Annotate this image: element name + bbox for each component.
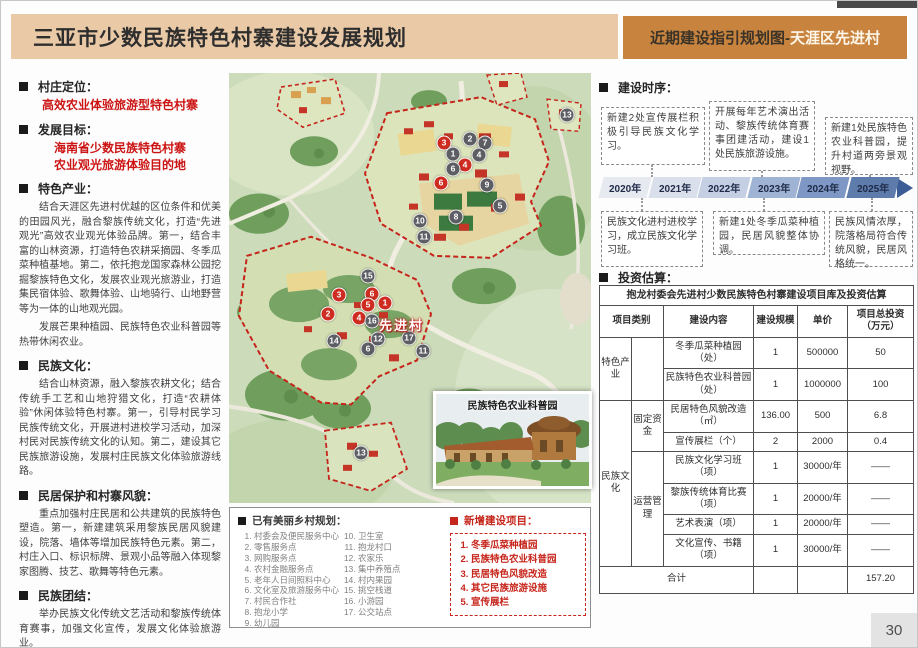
section-heading-text: 民居保护和村寨风貌：: [38, 487, 158, 504]
sequence-box-2023: 开展每年艺术演出活动、黎族传统体育赛事团建活动，建设1处民族旅游设施。: [709, 101, 815, 171]
price-cell: 20000/年: [798, 515, 848, 534]
content-cell: 宣传展栏（个）: [664, 432, 754, 451]
section-heading-positioning: 村庄定位：: [19, 78, 221, 95]
legend-new-heading: 新增建设项目：: [450, 513, 586, 528]
header-title-band: 三亚市少数民族特色村寨建设发展规划: [11, 14, 618, 59]
scale-cell: 1: [754, 337, 798, 369]
section-heading-text: 特色产业：: [38, 180, 98, 197]
col-header-category: 项目类别: [600, 306, 664, 338]
square-bullet-icon: [19, 82, 28, 91]
timeline: 2020年2021年2022年2023年2024年2025年: [601, 177, 913, 198]
legend-existing-columns: 村委会及便民服务中心零售服务点网购服务点农村金融服务点老年人日间照料中心文化室及…: [238, 531, 446, 629]
square-bullet-icon: [19, 491, 28, 500]
map-marker: 3: [332, 288, 347, 303]
timeline-year-segment: 2022年: [697, 177, 750, 198]
legend-item: 民居特色风貌改造: [471, 568, 581, 582]
map-marker: 13: [354, 446, 369, 461]
section-heading-unity: 民族团结：: [19, 587, 221, 604]
legend-item: 幼儿园: [254, 618, 342, 629]
legend-existing-list-2: 卫生室抱龙村口农家乐集中养殖点村内果园挑空栈道小游园公交站点: [342, 531, 446, 629]
map-marker: 1: [378, 296, 393, 311]
section-heading-text: 民族文化：: [38, 357, 98, 374]
price-cell: 30000/年: [798, 534, 848, 566]
map-marker: 5: [493, 199, 508, 214]
legend-existing-heading: 已有美丽乡村规划：: [238, 513, 446, 528]
price-cell: 20000/年: [798, 483, 848, 515]
square-bullet-icon: [19, 184, 28, 193]
positioning-red-line: 高效农业体验旅游型特色村寨: [19, 97, 221, 114]
legend-panel: 已有美丽乡村规划： 村委会及便民服务中心零售服务点网购服务点农村金融服务点老年人…: [229, 507, 591, 628]
investment-table-title: 抱龙村委会先进村少数民族特色村寨建设项目库及投资估算: [600, 286, 914, 306]
section-heading-industry: 特色产业：: [19, 180, 221, 197]
goal-red-line-2: 农业观光旅游体验目的地: [19, 157, 221, 174]
investment-table: 抱龙村委会先进村少数民族特色村寨建设项目库及投资估算 项目类别 建设内容 建设规…: [599, 285, 914, 594]
legend-item: 公交站点: [358, 607, 446, 618]
map-marker: 4: [472, 148, 487, 163]
page-number: 30: [871, 613, 917, 647]
square-bullet-icon: [19, 591, 28, 600]
footer-empty-cell: [798, 566, 848, 593]
section-heading-sequence: 建设时序：: [599, 79, 678, 96]
footer-label-cell: 合计: [600, 566, 754, 593]
sequence-result-box-3: 民族风情浓厚，院落格局符合传统风貌，民居风格统一。: [829, 211, 913, 267]
dotted-connector: [641, 198, 643, 211]
total-cell: ——: [848, 483, 914, 515]
legend-item: 老年人日间照料中心: [254, 575, 342, 586]
timeline-year-segment: 2021年: [648, 177, 701, 198]
timeline-year-segment: 2024年: [796, 177, 849, 198]
legend-item: 网购服务点: [254, 553, 342, 564]
section-heading-goals: 发展目标：: [19, 121, 221, 138]
square-bullet-icon: [238, 517, 246, 525]
total-cell: 100: [848, 369, 914, 401]
legend-item: 农村金融服务点: [254, 564, 342, 575]
content-cell: 艺术表演（项）: [664, 515, 754, 534]
legend-item: 抱龙村口: [358, 542, 446, 553]
map-marker: 11: [416, 344, 431, 359]
sequence-box-2021: 新建2处宣传展栏积极引导民族文化学习。: [601, 107, 705, 165]
section-heading-investment: 投资估算：: [599, 269, 678, 286]
legend-item: 卫生室: [358, 531, 446, 542]
legend-item: 集中养殖点: [358, 564, 446, 575]
map-marker: 11: [417, 230, 432, 245]
legend-new-projects: 新增建设项目： 冬季瓜菜种植园民族特色农业科普园民居特色风貌改造其它民族旅游设施…: [448, 508, 590, 627]
total-cell: ——: [848, 534, 914, 566]
sequence-box-2025: 新建1处民族特色农业科普园，提升村道两旁景观视野。: [825, 117, 913, 175]
legend-item: 零售服务点: [254, 542, 342, 553]
content-cell: 民族文化学习班（项）: [664, 452, 754, 484]
price-cell: 1000000: [798, 369, 848, 401]
section-heading-culture: 民族文化：: [19, 357, 221, 374]
footer-total-cell: 157.20: [848, 566, 914, 593]
subcategory-cell: 运营管理: [632, 452, 664, 566]
col-header-price: 单价: [798, 306, 848, 338]
header-subtitle-band: 近期建设指引规划图-天涯区先进村: [623, 16, 907, 59]
legend-item: 村民合作社: [254, 596, 342, 607]
section-heading-text: 村庄定位：: [38, 78, 98, 95]
col-header-total: 项目总投资（万元）: [848, 306, 914, 338]
timeline-year-segment: 2020年: [598, 177, 651, 198]
map-marker: 6: [434, 176, 449, 191]
page: 三亚市少数民族特色村寨建设发展规划 近期建设指引规划图-天涯区先进村 村庄定位：…: [0, 0, 918, 648]
map-marker: 2: [321, 307, 336, 322]
legend-item: 农家乐: [358, 553, 446, 564]
content-cell: 冬季瓜菜种植园（处）: [664, 337, 754, 369]
price-cell: 30000/年: [798, 452, 848, 484]
subcategory-cell-empty: [632, 337, 664, 400]
legend-new-heading-text: 新增建设项目：: [464, 513, 538, 528]
sequence-result-box-2: 新建1处冬季瓜菜种植园，民居风貌整体协调。: [713, 211, 825, 255]
map-marker: 6: [361, 342, 376, 357]
dotted-connector: [763, 198, 765, 211]
header-subtitle-village: 天涯区先进村: [790, 27, 880, 48]
total-cell: ——: [848, 515, 914, 534]
content-cell: 民居特色风貌改造（㎡）: [664, 401, 754, 433]
subcategory-cell: 固定资金: [632, 401, 664, 452]
legend-item: 文化室及旅游服务中心: [254, 585, 342, 596]
map-marker: 8: [449, 210, 464, 225]
industry-paragraph-2: 发展芒果种植园、民族特色农业科普园等热带休闲农业。: [19, 321, 221, 350]
dotted-connector: [871, 198, 873, 211]
top-edge-strip: [837, 1, 918, 8]
price-cell: 500: [798, 401, 848, 433]
legend-existing-list-1: 村委会及便民服务中心零售服务点网购服务点农村金融服务点老年人日间照料中心文化室及…: [238, 531, 342, 629]
inset-photo-title: 民族特色农业科普园: [436, 397, 589, 412]
legend-item: 民族特色农业科普园: [471, 553, 581, 567]
map-marker: 14: [327, 334, 342, 349]
content-cell: 文化宣传、书籍（项）: [664, 534, 754, 566]
village-label: 先进村: [379, 315, 424, 334]
left-text-column: 村庄定位： 高效农业体验旅游型特色村寨 发展目标： 海南省少数民族特色村寨 农业…: [19, 71, 221, 648]
total-cell: 6.8: [848, 401, 914, 433]
inset-photo-card: 民族特色农业科普园: [433, 391, 592, 489]
total-cell: 0.4: [848, 432, 914, 451]
footer-empty-cell: [754, 566, 798, 593]
legend-item: 抱龙小学: [254, 607, 342, 618]
legend-item: 其它民族旅游设施: [471, 582, 581, 596]
investment-heading-text: 投资估算：: [618, 269, 678, 286]
square-bullet-icon: [19, 125, 28, 134]
section-heading-text: 民族团结：: [38, 587, 98, 604]
section-heading-dwelling: 民居保护和村寨风貌：: [19, 487, 221, 504]
section-heading-text: 发展目标：: [38, 121, 98, 138]
planning-map: 32714469658101113153651241614126171113 先…: [229, 73, 591, 503]
col-header-scale: 建设规模: [754, 306, 798, 338]
legend-item: 宣传展栏: [471, 596, 581, 610]
page-title: 三亚市少数民族特色村寨建设发展规划: [33, 22, 407, 52]
content-cell: 黎族传统体育比赛（项）: [664, 483, 754, 515]
legend-item: 挑空栈道: [358, 585, 446, 596]
map-marker: 16: [365, 314, 380, 329]
timeline-year-segment: 2023年: [747, 177, 800, 198]
goal-red-line-1: 海南省少数民族特色村寨: [19, 140, 221, 157]
timeline-arrow-icon: [897, 178, 913, 198]
map-marker: 10: [413, 214, 428, 229]
legend-existing-heading-text: 已有美丽乡村规划：: [252, 513, 347, 528]
map-marker: 2: [463, 132, 478, 147]
scale-cell: 2: [754, 432, 798, 451]
price-cell: 500000: [798, 337, 848, 369]
content-cell: 民族特色农业科普园（处）: [664, 369, 754, 401]
sequence-result-box-1: 民族文化进村进校学习，成立民族文化学习班。: [601, 211, 703, 267]
map-marker: 6: [446, 162, 461, 177]
square-bullet-icon: [599, 83, 608, 92]
legend-item: 村内果园: [358, 575, 446, 586]
scale-cell: 136.00: [754, 401, 798, 433]
scale-cell: 1: [754, 515, 798, 534]
scale-cell: 1: [754, 534, 798, 566]
col-header-content: 建设内容: [664, 306, 754, 338]
legend-item: 冬季瓜菜种植园: [471, 539, 581, 553]
scale-cell: 1: [754, 369, 798, 401]
total-cell: ——: [848, 452, 914, 484]
category-cell: 民族文化: [600, 401, 632, 566]
map-marker: 9: [480, 178, 495, 193]
map-marker: 13: [560, 108, 575, 123]
legend-new-list: 冬季瓜菜种植园民族特色农业科普园民居特色风貌改造其它民族旅游设施宣传展栏: [450, 533, 586, 616]
industry-paragraph-1: 结合天涯区先进村优越的区位条件和优美的田园风光，融合黎族传统文化，打造“先进观光…: [19, 201, 221, 317]
legend-existing: 已有美丽乡村规划： 村委会及便民服务中心零售服务点网购服务点农村金融服务点老年人…: [230, 508, 448, 627]
category-cell: 特色产业: [600, 337, 632, 400]
culture-paragraph: 结合山林资源，融入黎族农耕文化；结合传统手工艺和山地狩猎文化，打造“农耕体验”休…: [19, 378, 221, 480]
red-square-bullet-icon: [450, 517, 458, 525]
square-bullet-icon: [599, 273, 608, 282]
legend-item: 村委会及便民服务中心: [254, 531, 342, 542]
sequence-heading-text: 建设时序：: [618, 79, 678, 96]
header-subtitle-prefix: 近期建设指引规划图-: [650, 27, 790, 48]
map-marker: 15: [361, 269, 376, 284]
dotted-connector: [651, 165, 653, 177]
map-marker: 5: [361, 298, 376, 313]
dwelling-paragraph: 重点加强村庄民居和公共建筑的民族特色塑造。第一，新建建筑采用黎族民居风貌建设，院…: [19, 508, 221, 581]
total-cell: 50: [848, 337, 914, 369]
unity-paragraph: 举办民族文化传统文艺活动和黎族传统体育赛事，加强文化宣传，发展文化体验旅游业。: [19, 608, 221, 648]
scale-cell: 1: [754, 452, 798, 484]
price-cell: 2000: [798, 432, 848, 451]
scale-cell: 1: [754, 483, 798, 515]
square-bullet-icon: [19, 361, 28, 370]
timeline-year-segment: 2025年: [846, 177, 899, 198]
legend-item: 小游园: [358, 596, 446, 607]
